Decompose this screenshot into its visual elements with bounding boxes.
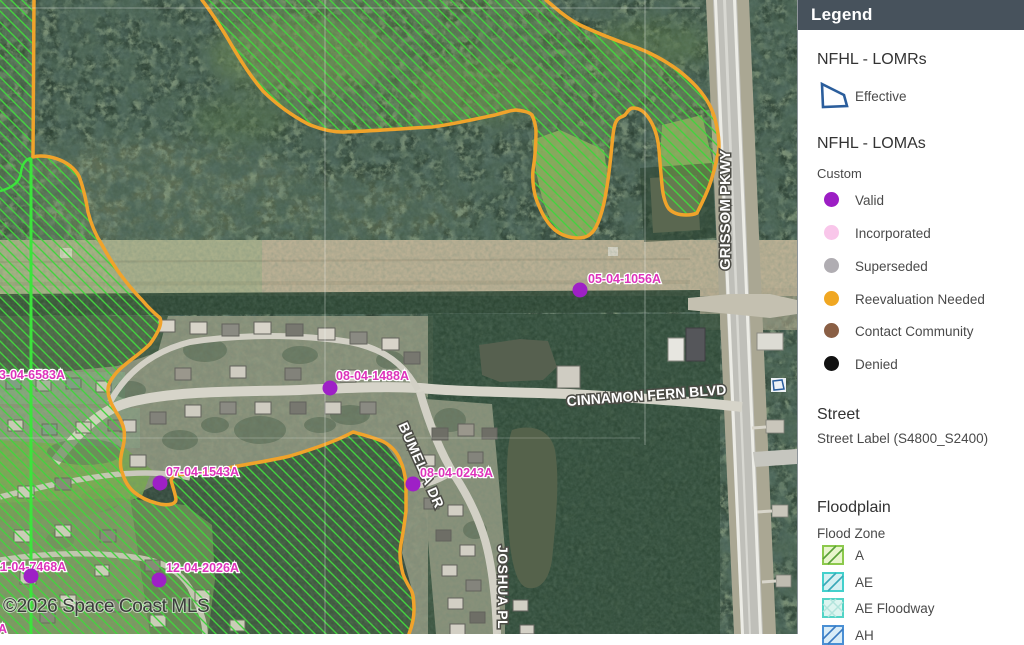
svg-text:©2026 Space Coast MLS: ©2026 Space Coast MLS bbox=[3, 596, 209, 617]
svg-text:05-04-1056A: 05-04-1056A bbox=[588, 272, 661, 286]
svg-text:GRISSOM PKWY: GRISSOM PKWY bbox=[717, 150, 734, 270]
svg-text:JOSHUA PL: JOSHUA PL bbox=[495, 545, 511, 629]
svg-text:08-04-1488A: 08-04-1488A bbox=[336, 369, 409, 383]
svg-text:07-04-1543A: 07-04-1543A bbox=[166, 465, 239, 479]
svg-text:12-04-2026A: 12-04-2026A bbox=[166, 561, 239, 575]
svg-text:A: A bbox=[0, 622, 7, 634]
svg-text:08-04-0243A: 08-04-0243A bbox=[420, 466, 493, 480]
svg-text:13-04-6583A: 13-04-6583A bbox=[0, 368, 65, 382]
